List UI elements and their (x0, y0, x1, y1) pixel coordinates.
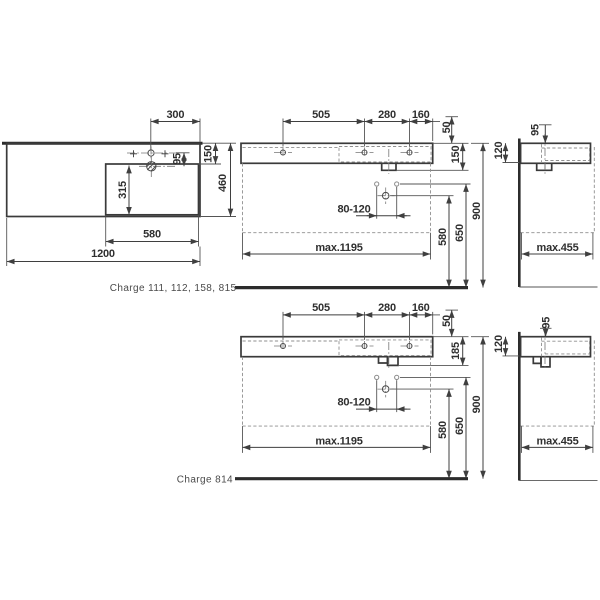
dim-plan-580-value: 580 (143, 228, 161, 240)
dim-max455-top-value: max.455 (536, 242, 578, 254)
dim-95-bottom-value: 95 (541, 317, 553, 329)
dim-95-top-value: 95 (530, 124, 542, 136)
dim-50-bottom-value: 50 (441, 315, 453, 327)
dim-max1195-bottom-value: max.1195 (315, 435, 362, 447)
side-view-bottom: 95 120 max.455 (493, 317, 598, 481)
front-bowl-hidden-bottom (339, 340, 431, 356)
dim-max455-bottom-value: max.455 (536, 435, 578, 447)
dim-280-bottom: 280 (378, 302, 396, 314)
dim-160-top: 160 (412, 109, 430, 121)
plan-view: 300 95 150 460 315 (2, 109, 236, 266)
dim-plan-150: 150 (199, 143, 222, 164)
front-tap-symbols-bottom (274, 341, 419, 351)
fixing-hole-left-bottom (375, 375, 379, 379)
technical-drawing-sheet: 300 95 150 460 315 (0, 0, 600, 600)
side-drain-outlet-top (537, 163, 552, 170)
dim-plan-1200-value: 1200 (91, 248, 115, 260)
dim-900-bottom-value: 900 (471, 396, 483, 414)
dim-side-95-bottom: 95 (540, 317, 553, 337)
dim-plan-460-value: 460 (217, 174, 229, 192)
dim-plan-150-value: 150 (202, 145, 214, 163)
dim-fixing-range-bottom: 80-120 (337, 380, 410, 412)
dim-650-top: 650 (400, 184, 471, 288)
dim-900-top-value: 900 (471, 202, 483, 220)
dim-280-top: 280 (378, 109, 396, 121)
front-view-bottom: 505 280 160 50 185 (235, 302, 489, 479)
dim-plan-315-value: 315 (117, 181, 129, 199)
washbasin-dimension-drawing: 300 95 150 460 315 (0, 0, 600, 600)
dim-580-top-value: 580 (437, 228, 449, 246)
dim-front-50-top: 50 (441, 117, 458, 144)
dim-650-top-value: 650 (454, 224, 466, 242)
dim-side-120-bottom: 120 (493, 335, 519, 356)
dim-160-bottom: 160 (412, 302, 430, 314)
dim-front-top-taps: 505 280 160 (283, 109, 440, 147)
dim-80-120-top-value: 80-120 (337, 203, 370, 215)
alt-tap-position-cross (130, 150, 169, 157)
dim-120-bottom-value: 120 (493, 335, 505, 353)
dim-150-top-value: 150 (450, 146, 462, 164)
dim-185-bottom-value: 185 (450, 342, 462, 360)
dim-505-bottom: 505 (312, 302, 330, 314)
dim-plan-300-value: 300 (167, 109, 185, 121)
dim-900-top: 900 (471, 143, 489, 287)
dim-80-120-bottom-value: 80-120 (337, 397, 370, 409)
dim-front-50-bottom: 50 (441, 310, 458, 337)
dim-650-bottom: 650 (400, 377, 471, 478)
dim-side-120-top: 120 (493, 142, 519, 163)
dim-front-bottom-taps: 505 280 160 (283, 302, 440, 340)
fixing-hole-right-top (395, 182, 399, 186)
dim-580-bottom: 580 (390, 389, 454, 479)
dim-plan-315: 315 (117, 166, 129, 215)
variant-label-bottom: Charge 814 (177, 475, 233, 486)
dim-900-bottom: 900 (471, 337, 489, 479)
side-view-top: 95 120 max.455 (493, 124, 598, 287)
dim-580-bottom-value: 580 (437, 421, 449, 439)
dim-650-bottom-value: 650 (454, 417, 466, 435)
dim-plan-95-value: 95 (171, 153, 183, 165)
dim-side-95-top: 95 (530, 124, 552, 143)
dim-505-top: 505 (312, 109, 330, 121)
dim-50-top-value: 50 (441, 122, 453, 134)
dim-plan-580: 580 (106, 217, 199, 247)
front-view-top: 505 280 160 50 150 (235, 109, 489, 288)
fixing-hole-right-bottom (395, 375, 399, 379)
front-bowl-hidden-top (339, 147, 431, 163)
dim-fixing-range-top: 80-120 (337, 187, 410, 219)
dim-120-top-value: 120 (493, 142, 505, 160)
variant-label-top: Charge 111, 112, 158, 815 (110, 283, 237, 294)
dim-max1195-top-value: max.1195 (315, 242, 362, 254)
fixing-hole-left-top (375, 182, 379, 186)
dim-580-top: 580 (390, 196, 454, 288)
front-tap-symbols-top (274, 148, 419, 158)
